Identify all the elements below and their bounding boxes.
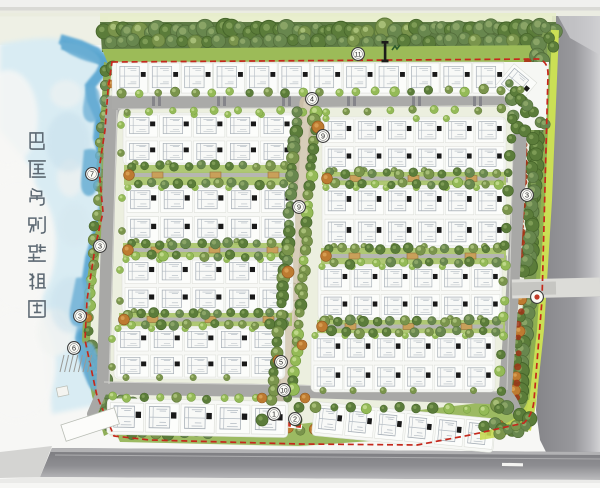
svg-text:10: 10 xyxy=(280,387,288,394)
svg-text:6: 6 xyxy=(72,343,76,352)
svg-text:4: 4 xyxy=(310,94,314,103)
svg-text:11: 11 xyxy=(355,51,362,58)
svg-text:1: 1 xyxy=(272,409,276,418)
svg-text:7: 7 xyxy=(90,169,94,178)
svg-text:3: 3 xyxy=(78,311,82,320)
svg-text:9: 9 xyxy=(297,202,301,211)
svg-text:3: 3 xyxy=(525,190,529,199)
svg-text:2: 2 xyxy=(293,414,297,423)
svg-text:3: 3 xyxy=(98,241,102,250)
svg-text:9: 9 xyxy=(321,131,325,140)
svg-text:5: 5 xyxy=(279,357,283,366)
